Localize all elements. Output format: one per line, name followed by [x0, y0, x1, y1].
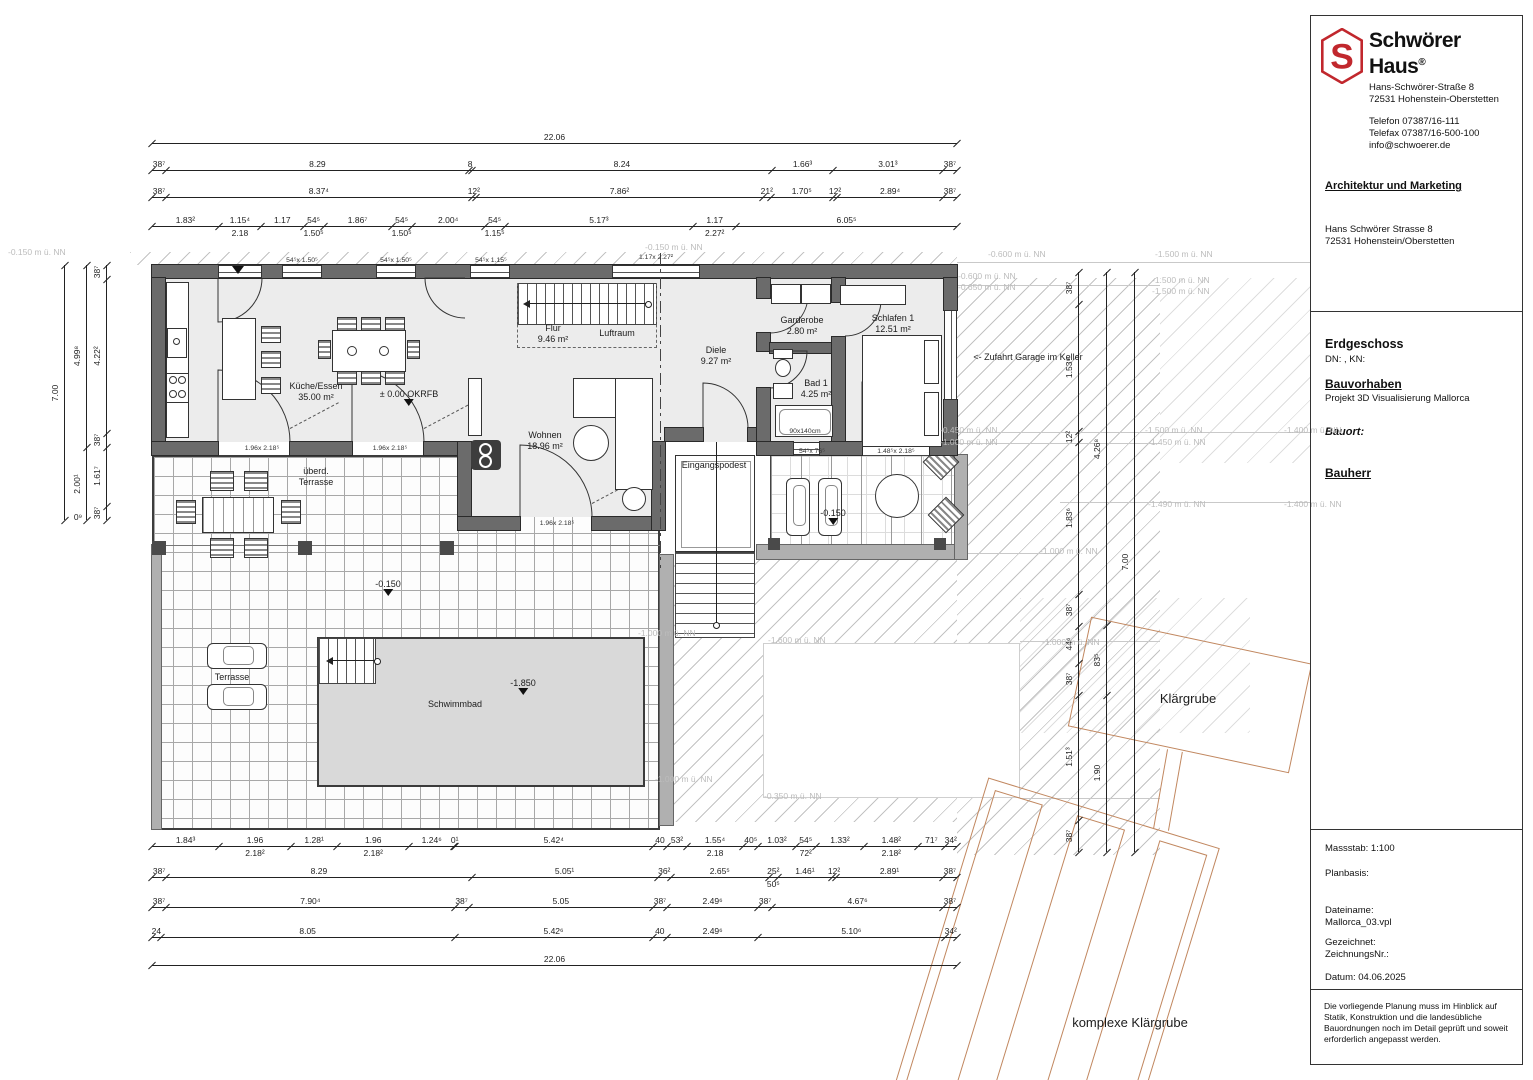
- dimension-label: 38⁷: [92, 266, 102, 279]
- svg-text:S: S: [1330, 37, 1354, 76]
- dimension-label: 8.37⁴: [309, 186, 329, 196]
- dimension-label: 12²: [468, 186, 480, 196]
- level-value: ± 0.00 OKRFB: [380, 389, 438, 399]
- level-value: -0.150: [820, 508, 846, 518]
- opening-size-label: 54⁵x 76⁵: [799, 448, 825, 455]
- room-name: Wohnen: [527, 430, 563, 441]
- registered-mark: ®: [1418, 57, 1425, 68]
- dimension-label: 1.46¹: [795, 866, 814, 876]
- wall-segment: [944, 278, 957, 310]
- dimension-tick: [83, 262, 91, 270]
- dimension-row: 38⁷7.90⁴38⁷5.0538⁷2.49⁶38⁷4.67⁶38⁷: [152, 896, 957, 920]
- opening-size-label: 54⁵x 1.50⁵: [286, 257, 318, 264]
- dimension-tick: [61, 517, 69, 525]
- dimension-sublabel: 2.27²: [705, 228, 724, 238]
- dimension-label: 40⁵: [744, 835, 757, 845]
- dimension-label: 1.51³: [1064, 748, 1074, 767]
- bauvorhaben-value: Projekt 3D Visualisierung Mallorca: [1325, 393, 1470, 405]
- room-area: 18.96 m²: [527, 441, 563, 452]
- wardrobe: [840, 285, 906, 305]
- level-marker: -0.150: [375, 579, 401, 596]
- sun-lounger: [818, 478, 842, 536]
- dimension-tick: [103, 444, 111, 452]
- pool-stairs-arrowhead: [326, 657, 333, 665]
- elevation-label: -0.450 m ü. NN: [940, 425, 998, 435]
- bauherr-label: Bauherr: [1325, 467, 1371, 479]
- dimension-label: 2.49⁶: [703, 926, 723, 936]
- dimension-line: [152, 937, 957, 938]
- dimension-tick: [103, 430, 111, 438]
- outdoor-chair: [281, 500, 301, 524]
- terrace-pillar: [440, 541, 454, 555]
- floor-title: Erdgeschoss: [1325, 338, 1404, 350]
- terrace-east-wall: [660, 555, 673, 825]
- dimension-tick: [103, 517, 111, 525]
- terrace-left-wall: [152, 545, 161, 829]
- dimension-label: 8.29: [311, 866, 328, 876]
- dimension-label: 5.05¹: [555, 866, 574, 876]
- elevation-label: -0.650 m ü. NN: [958, 282, 1016, 292]
- dimension-label: 83⁵: [1092, 654, 1102, 667]
- dimension-line: [152, 143, 957, 144]
- dimension-label: 7.90⁴: [300, 896, 320, 906]
- wall-segment: [152, 442, 218, 455]
- company-name-line2: Haus®: [1369, 52, 1425, 77]
- dimension-sublabel: 2.18²: [882, 848, 901, 858]
- dimension-line: [152, 170, 957, 171]
- dimension-label: 54⁵: [307, 215, 320, 225]
- room-area: 9.46 m²: [538, 334, 569, 345]
- terrace-pillar: [152, 541, 166, 555]
- elevation-label: -1.490 m ü. NN: [1148, 499, 1206, 509]
- dimension-row: 38⁷8.2988.241.66³3.01³38⁷: [152, 159, 957, 183]
- stove-burner: [178, 376, 186, 384]
- opening-size-label: 90x140cm: [789, 428, 820, 435]
- dimension-label: 1.83²: [176, 215, 195, 225]
- elevation-label: -1.500 m ü. NN: [1155, 249, 1213, 259]
- elevation-label: -1.600 m ü. NN: [768, 635, 826, 645]
- dimension-label: 38⁷: [153, 896, 166, 906]
- room-area: 35.00 m²: [289, 392, 342, 403]
- dimension-label: 5.10⁶: [841, 926, 861, 936]
- kitchen-counter: [166, 282, 189, 438]
- wall-segment: [665, 428, 703, 441]
- dimension-label: 1.33²: [830, 835, 849, 845]
- office-address1: Hans Schwörer Strasse 8: [1325, 224, 1433, 236]
- dimension-label: 2.89¹: [880, 866, 899, 876]
- window-opening: [612, 265, 700, 278]
- elevation-label: -1.400 m ü. NN: [1284, 425, 1342, 435]
- dimension-tick: [1075, 817, 1083, 825]
- elevation-label: -1.000 m ü. NN: [655, 774, 713, 784]
- dimension-label: 2.89⁴: [880, 186, 900, 196]
- dimension-tick: [1103, 691, 1111, 699]
- table-setting: [379, 346, 389, 356]
- entry-direction-marker: [232, 266, 244, 274]
- elevation-label: -1.500 m ü. NN: [1152, 275, 1210, 285]
- patio-pillar: [934, 538, 946, 550]
- dimension-line: [152, 226, 957, 227]
- stairs-arrowhead: [523, 300, 530, 308]
- dimension-label: 1.55⁴: [705, 835, 725, 845]
- dimension-label: 2.00¹: [72, 474, 82, 493]
- dimension-label: 38⁷: [1064, 282, 1074, 295]
- opening-size-label: 1.96x 2.18⁵: [540, 520, 575, 527]
- dimension-line: [86, 265, 87, 520]
- patio-table: [875, 474, 919, 518]
- opening-size-label: 54⁵x 1.15⁵: [475, 257, 507, 264]
- wall-segment: [832, 337, 845, 442]
- dimension-tick: [103, 276, 111, 284]
- department: Architektur und Marketing: [1325, 180, 1462, 192]
- elevation-label: -1.450 m ü. NN: [1148, 437, 1206, 447]
- side-stool: [622, 487, 646, 511]
- dimension-label: 7.86²: [610, 186, 629, 196]
- wall-segment: [152, 265, 957, 278]
- dimension-label: 38⁷: [92, 507, 102, 520]
- dimension-tick: [103, 503, 111, 511]
- dining-chair: [385, 317, 405, 331]
- dimension-label: 4.67⁶: [848, 896, 868, 906]
- dining-table: [332, 330, 406, 372]
- dimension-label: 5.42⁴: [544, 835, 564, 845]
- annotation-label: Luftraum: [599, 328, 635, 338]
- bed-pillow: [924, 340, 939, 384]
- dateiname-label: Dateiname:: [1325, 905, 1374, 917]
- dimension-label: 38⁷: [455, 896, 468, 906]
- dimension-label: 38⁷: [759, 896, 772, 906]
- room-name: Küche/Essen: [289, 381, 342, 392]
- garderobe-shelf: [801, 284, 831, 304]
- dimension-label: 38⁷: [944, 159, 957, 169]
- pool-stairs-arrow: [330, 660, 376, 661]
- dimension-label: 1.48²: [882, 835, 901, 845]
- dimension-label: 38⁷: [654, 896, 667, 906]
- elevation-label: -0.150 m ü. NN: [645, 242, 703, 252]
- dimension-label: 1.66³: [793, 159, 812, 169]
- outdoor-chair: [210, 471, 234, 491]
- dimension-row: 1.84³1.962.18²1.28¹1.962.18²1.24⁶0¹5.42⁴…: [152, 835, 957, 859]
- dimension-label: 8.29: [309, 159, 326, 169]
- gezeichnet-label: Gezeichnet:: [1325, 937, 1376, 949]
- dimension-label: 54⁵: [799, 835, 812, 845]
- dimension-label: 25²: [767, 866, 779, 876]
- wall-segment: [652, 442, 665, 530]
- dimension-label: 24: [152, 926, 161, 936]
- company-email: info@schwoerer.de: [1369, 140, 1450, 152]
- dimension-sublabel: 2.18²: [245, 848, 264, 858]
- stove-burner: [169, 390, 177, 398]
- dimension-label: 40: [655, 926, 664, 936]
- bath-sink: [773, 383, 793, 399]
- dimension-label: 38⁷: [153, 866, 166, 876]
- dining-chair: [361, 371, 381, 385]
- dimension-label: 38⁷: [153, 159, 166, 169]
- company-address1: Hans-Schwörer-Straße 8: [1369, 82, 1474, 94]
- dining-chair: [318, 340, 331, 359]
- stairs-start: [645, 301, 652, 308]
- dimension-label: 2.65⁵: [710, 866, 730, 876]
- window-opening: [944, 310, 957, 400]
- dimension-tick: [1103, 269, 1111, 277]
- room-label: Schlafen 112.51 m²: [872, 313, 915, 335]
- dimension-sublabel: 72²: [800, 848, 812, 858]
- bar-chair: [261, 377, 281, 394]
- dimension-label: 1.24⁶: [422, 835, 442, 845]
- dimension-line: [1106, 272, 1107, 852]
- wall-segment: [152, 278, 165, 455]
- room-name: Garderobe: [780, 315, 823, 326]
- dimension-label: 6.05⁵: [836, 215, 856, 225]
- room-name: Diele: [701, 345, 732, 356]
- dimension-label: 1.61⁷: [92, 467, 102, 487]
- section-divider: [1311, 829, 1522, 830]
- dimension-label: 8.24: [614, 159, 631, 169]
- dimension-label: 1.96: [365, 835, 382, 845]
- dimension-label: 22.06: [544, 954, 565, 964]
- floorplan-page: S Schwörer Haus® Hans-Schwörer-Straße 8 …: [0, 0, 1533, 1080]
- dimension-tick: [1075, 301, 1083, 309]
- annotation-label: Schwimmbad: [428, 699, 482, 709]
- dimension-label: 1.90: [1092, 765, 1102, 782]
- dimension-sublabel: 2.18²: [364, 848, 383, 858]
- opening-size-label: 1.17x 2.27²: [639, 254, 673, 261]
- planbasis: Planbasis:: [1325, 868, 1369, 880]
- dimension-tick: [1075, 438, 1083, 446]
- dimension-tick: [103, 262, 111, 270]
- dimension-tick: [83, 444, 91, 452]
- dining-chair: [385, 371, 405, 385]
- dimension-tick: [1103, 622, 1111, 630]
- company-name-line1: Schwörer: [1369, 30, 1461, 51]
- dimension-label: 1.84³: [176, 835, 195, 845]
- dimension-label: 22.06: [544, 132, 565, 142]
- dimension-label: 38⁷: [944, 186, 957, 196]
- room-label: Bad 14.25 m²: [801, 378, 832, 400]
- wall-segment: [748, 428, 757, 441]
- terrace-pillar: [298, 541, 312, 555]
- outdoor-chair: [244, 538, 268, 558]
- dimension-row: 22.06: [152, 132, 957, 156]
- dimension-extra-label: 0⁹: [74, 512, 82, 522]
- room-area: 2.80 m²: [780, 326, 823, 337]
- level-triangle-icon: [404, 399, 414, 406]
- dimension-tick: [61, 262, 69, 270]
- wall-segment: [757, 333, 770, 351]
- level-triangle-icon: [383, 589, 393, 596]
- dimension-label: 53²: [671, 835, 683, 845]
- wall-segment: [424, 442, 458, 455]
- bauvorhaben-label: Bauvorhaben: [1325, 378, 1402, 390]
- room-label: Wohnen18.96 m²: [527, 430, 563, 452]
- dimension-label: 0¹: [451, 835, 459, 845]
- opening-size-label: 1.96x 2.18⁵: [245, 445, 280, 452]
- opening-size-label: 1.96x 2.18⁵: [373, 445, 408, 452]
- window-opening: [376, 265, 416, 278]
- dimension-label: 1.96: [247, 835, 264, 845]
- annotation-label: überd.: [303, 466, 329, 476]
- dimension-label: 38⁷: [1064, 672, 1074, 685]
- wall-segment: [757, 278, 770, 298]
- pool-stairs-start: [374, 658, 381, 665]
- elevation-label: -1.400 m ü. NN: [1284, 499, 1342, 509]
- dimension-label: 1.70⁵: [792, 186, 812, 196]
- window-opening: [470, 265, 510, 278]
- dimension-tick: [1075, 691, 1083, 699]
- dimension-row: 38⁷8.295.05¹36²2.65⁵25²50⁵1.46¹12²2.89¹3…: [152, 866, 957, 890]
- stove-burner: [178, 390, 186, 398]
- room-label: Diele9.27 m²: [701, 345, 732, 367]
- dateiname-value: Mallorca_03.vpl: [1325, 917, 1392, 929]
- dimension-tick: [1075, 659, 1083, 667]
- annotation-label: <- Zufahrt Garage im Keller: [973, 352, 1082, 362]
- annotation-label: Klärgrube: [1160, 691, 1216, 706]
- toilet-bowl: [775, 359, 791, 377]
- dimension-tick: [1075, 428, 1083, 436]
- bed-pillow: [924, 392, 939, 436]
- elevation-label: -1.000 m ü. NN: [940, 437, 998, 447]
- room-name: Bad 1: [801, 378, 832, 389]
- outdoor-chair: [176, 500, 196, 524]
- dimension-label: 38⁷: [944, 866, 957, 876]
- dimension-label: 4.22²: [92, 346, 102, 365]
- annotation-label: Terrasse: [299, 477, 334, 487]
- dimension-row: 38⁷8.37⁴12²7.86²21²1.70⁵12²2.89⁴38⁷: [152, 186, 957, 210]
- room-name: Flur: [538, 323, 569, 334]
- dimension-label: 34²: [945, 835, 957, 845]
- dimension-label: 4.26⁸: [1092, 439, 1102, 459]
- dimension-column: 38⁷4.22²38⁷1.61⁷38⁷: [96, 265, 118, 520]
- room-area: 9.27 m²: [701, 356, 732, 367]
- dimension-label: 2.00⁴: [438, 215, 458, 225]
- dimension-line: [152, 907, 957, 908]
- kitchen-island: [222, 318, 256, 400]
- dining-chair: [361, 317, 381, 331]
- sideboard: [468, 378, 482, 436]
- dimension-sublabel: 1.50⁵: [304, 228, 324, 238]
- dining-chair: [337, 317, 357, 331]
- elevation-label: -1.500 m ü. NN: [1152, 286, 1210, 296]
- garderobe-shelf: [771, 284, 801, 304]
- toilet: [773, 349, 793, 359]
- level-triangle-icon: [828, 518, 838, 525]
- dimension-tick: [1131, 269, 1139, 277]
- dimension-label: 1.17: [706, 215, 723, 225]
- elevation-label: -0.600 m ü. NN: [988, 249, 1046, 259]
- company-address2: 72531 Hohenstein-Oberstetten: [1369, 94, 1499, 106]
- contour-line: [957, 262, 1310, 263]
- fireplace: [471, 440, 501, 470]
- outdoor-table: [202, 497, 274, 533]
- elevation-label: -1.500 m ü. NN: [1145, 425, 1203, 435]
- office-address2: 72531 Hohenstein/Oberstetten: [1325, 236, 1454, 248]
- window-opening: [282, 265, 322, 278]
- bar-chair: [261, 351, 281, 368]
- door-arc: [425, 278, 466, 319]
- dimension-label: 38⁷: [153, 186, 166, 196]
- dimension-label: 40: [655, 835, 664, 845]
- room-area: 4.25 m²: [801, 389, 832, 400]
- door-arc: [218, 278, 263, 323]
- annotation-label: komplexe Klärgrube: [1072, 1015, 1188, 1030]
- section-line: [660, 253, 661, 568]
- patio-pillar: [768, 538, 780, 550]
- dimension-row: 248.055.42⁶402.49⁶5.10⁶34²: [152, 926, 957, 950]
- dimension-label: 12²: [828, 866, 840, 876]
- table-setting: [347, 346, 357, 356]
- elevation-label: -1.000 m ü. NN: [638, 628, 696, 638]
- dimension-label: 54⁵: [395, 215, 408, 225]
- level-marker: -1.850: [510, 678, 536, 695]
- dimension-label: 5.05: [553, 896, 570, 906]
- wall-segment: [820, 442, 862, 455]
- dimension-sublabel: 2.18: [707, 848, 724, 858]
- room-area: 12.51 m²: [872, 324, 915, 335]
- dimension-label: 21²: [761, 186, 773, 196]
- section-divider: [1311, 989, 1522, 990]
- dimension-label: 36²: [658, 866, 670, 876]
- stairs-arrow: [527, 303, 648, 304]
- dimension-label: 54⁵: [488, 215, 501, 225]
- dimension-label: 5.42⁶: [543, 926, 563, 936]
- title-block: S Schwörer Haus® Hans-Schwörer-Straße 8 …: [1310, 15, 1523, 1065]
- disclaimer: Die vorliegende Planung muss im Hinblick…: [1324, 1001, 1510, 1045]
- dimension-label: 38⁷: [944, 896, 957, 906]
- dimension-label: 3.01³: [878, 159, 897, 169]
- company-phone: Telefon 07387/16-111: [1369, 116, 1460, 128]
- wall-segment: [757, 442, 793, 455]
- dimension-sublabel: 1.15⁵: [485, 228, 505, 238]
- outdoor-chair: [244, 471, 268, 491]
- sofa-chaise: [615, 378, 653, 490]
- dimension-label: 5.17³: [589, 215, 608, 225]
- dimension-column: 4.26⁸83⁵1.90: [1096, 272, 1118, 852]
- dn-kn: DN: , KN:: [1325, 354, 1365, 366]
- room-name: Schlafen 1: [872, 313, 915, 324]
- dimension-tick: [83, 517, 91, 525]
- stove-burner: [169, 376, 177, 384]
- dimension-label: 1.86⁷: [348, 215, 368, 225]
- dimension-line: [64, 265, 65, 520]
- elevation-label: -0.150 m ü. NN: [8, 247, 66, 257]
- company-fax: Telefax 07387/16-500-100: [1369, 128, 1479, 140]
- ground-hatch-top-strip: [130, 252, 957, 265]
- coffee-table: [573, 425, 609, 461]
- ground-hatch-far-east: [1160, 278, 1310, 463]
- section-divider: [1311, 311, 1522, 312]
- elevation-label: -1.000 m ü. NN: [1040, 546, 1098, 556]
- dimension-label: 8.05: [299, 926, 316, 936]
- dimension-line: [106, 265, 107, 520]
- dimension-label: 38⁷: [92, 434, 102, 447]
- dimension-line: [152, 846, 957, 847]
- dimension-label: 7.00: [1120, 554, 1130, 571]
- outdoor-chair: [210, 538, 234, 558]
- elevation-label: -0.600 m ü. NN: [958, 271, 1016, 281]
- dimension-label: 8: [468, 159, 473, 169]
- dimension-line: [1134, 272, 1135, 852]
- level-marker: ± 0.00 OKRFB: [380, 389, 438, 406]
- massstab: Massstab: 1:100: [1325, 843, 1395, 855]
- level-marker: -0.150: [820, 508, 846, 525]
- dimension-label: 1.83⁶: [1064, 508, 1074, 528]
- level-value: -0.150: [375, 579, 401, 589]
- wall-segment: [290, 442, 352, 455]
- entry-stairs-start: [713, 622, 720, 629]
- room-label: Küche/Essen35.00 m²: [289, 381, 342, 403]
- door-arc: [703, 383, 749, 429]
- dimension-sublabel: 50⁵: [767, 879, 780, 889]
